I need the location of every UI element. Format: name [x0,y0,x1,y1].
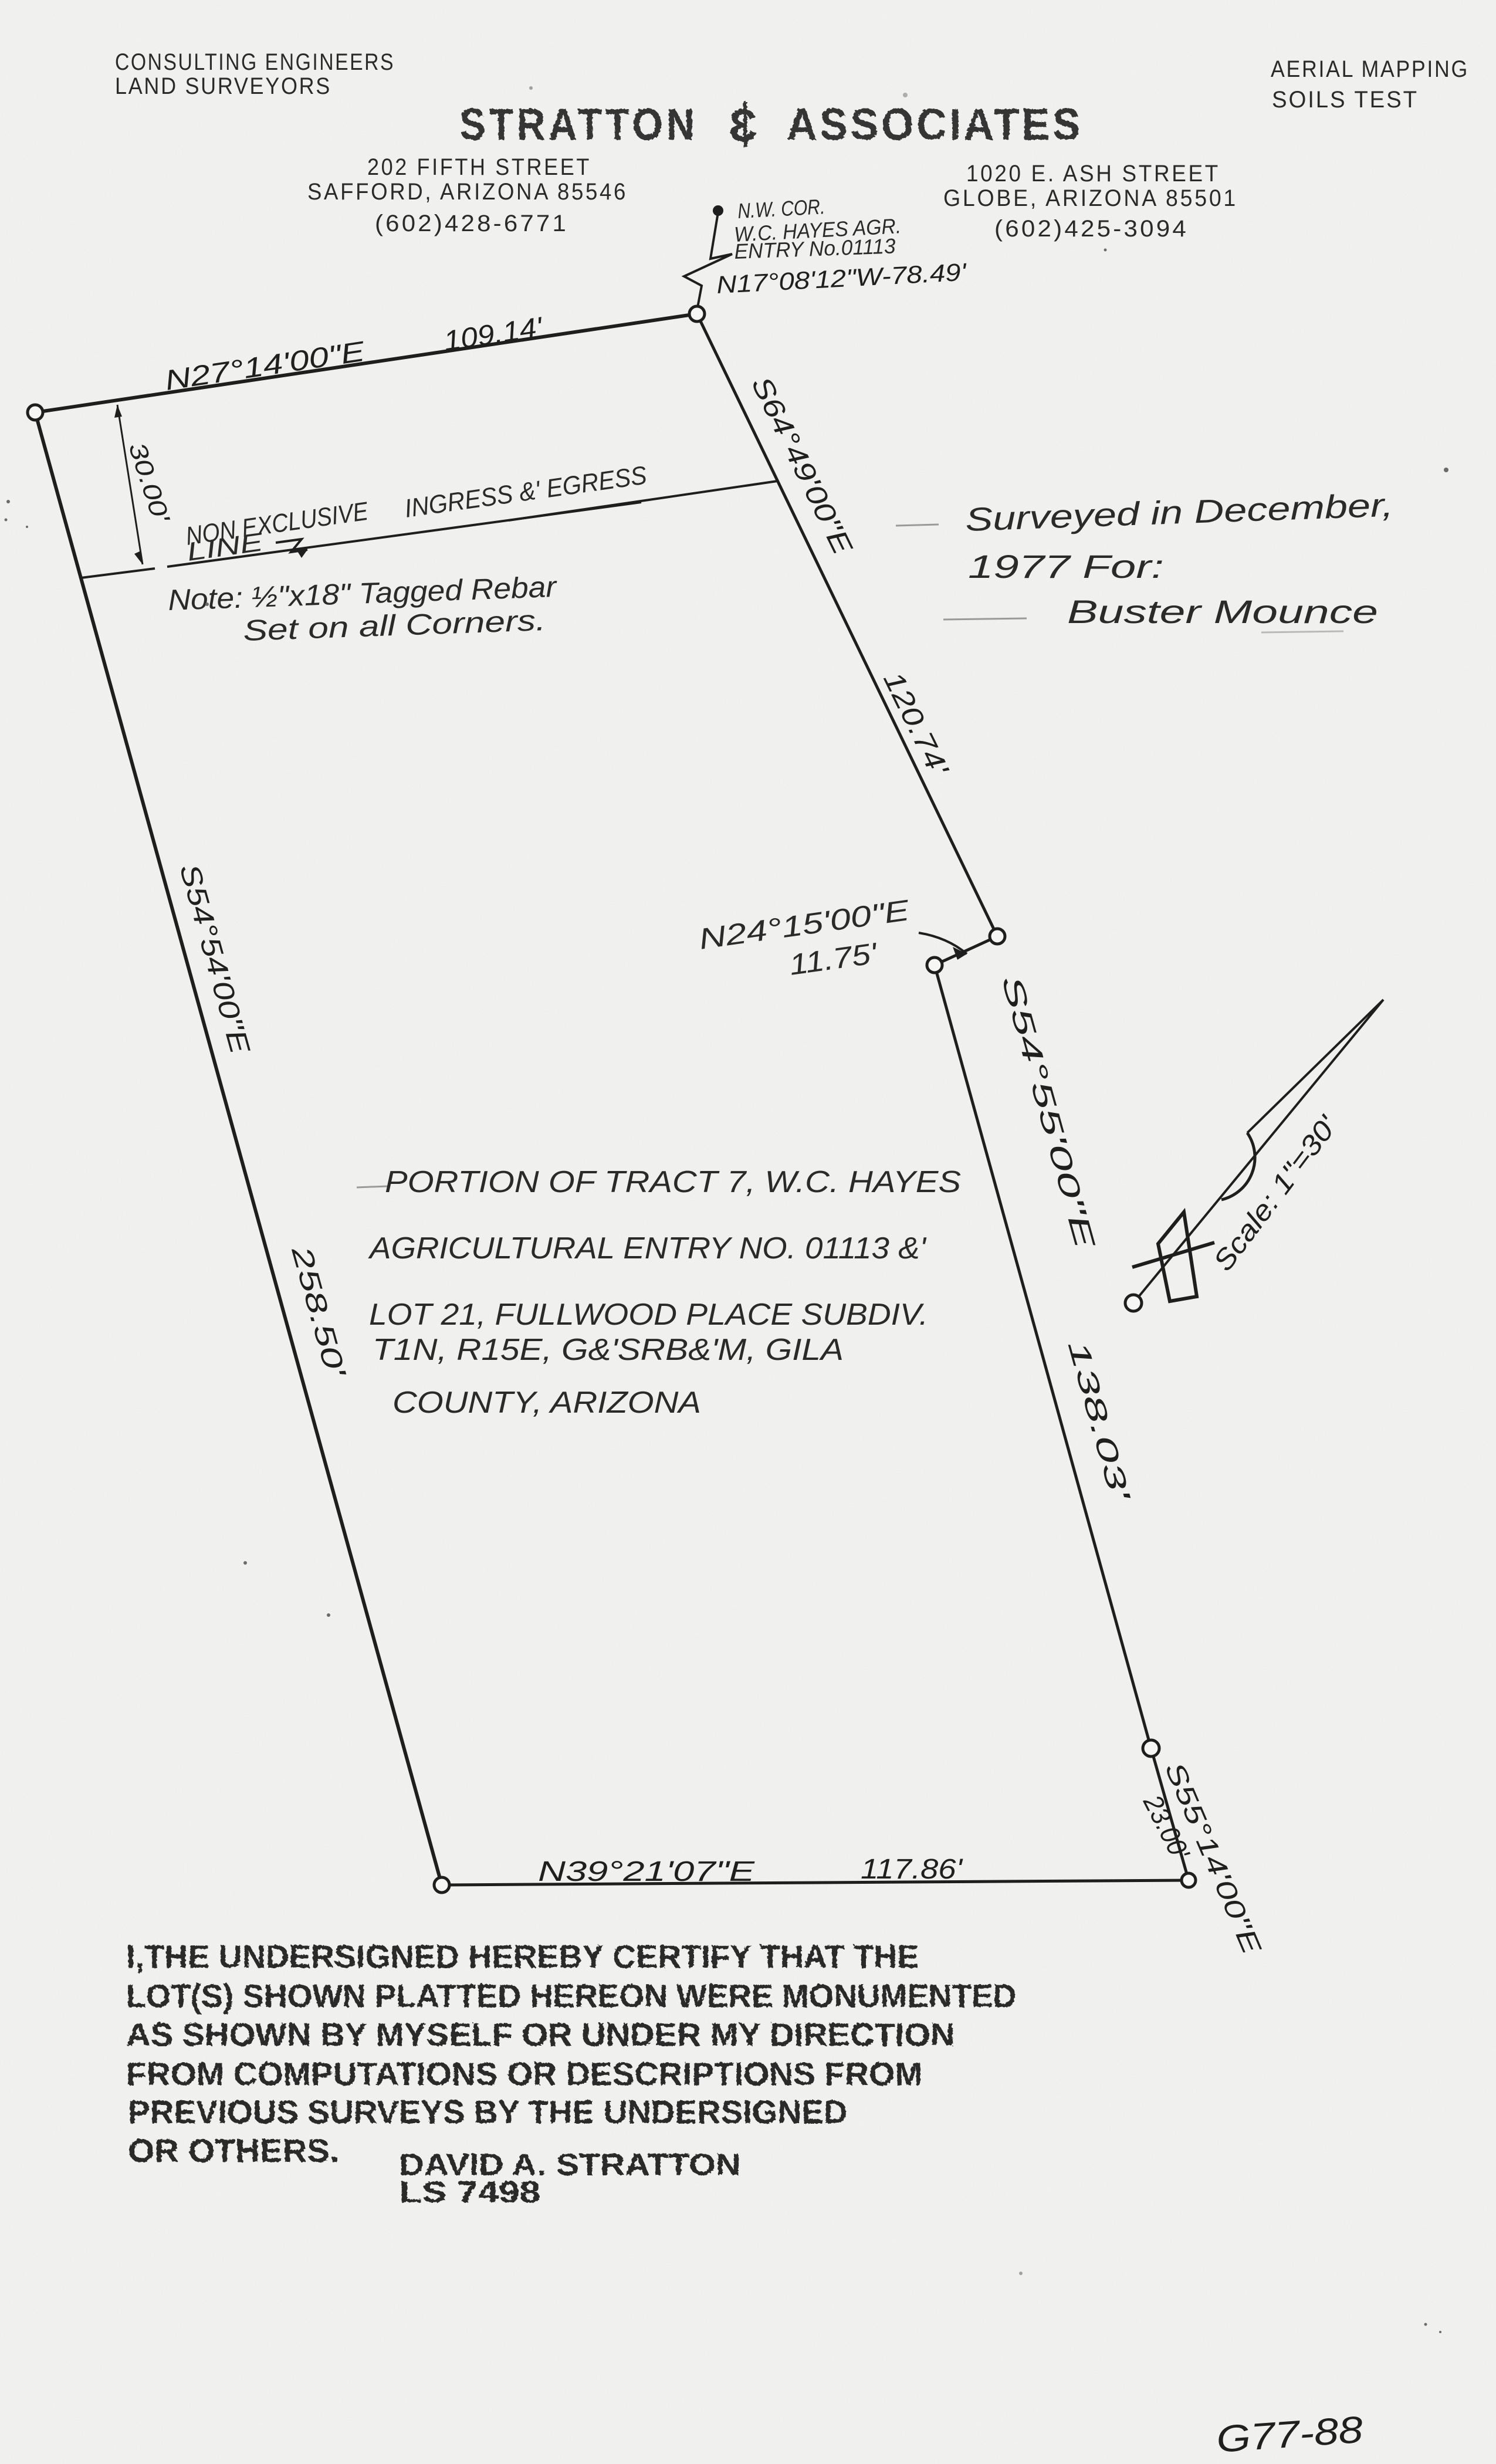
svg-text:LS 7498: LS 7498 [398,2175,540,2209]
svg-text:AGRICULTURAL ENTRY NO. 01113 &: AGRICULTURAL ENTRY NO. 01113 &' [368,1231,927,1265]
svg-text:1977 For:: 1977 For: [968,548,1164,585]
svg-text:LAND SURVEYORS: LAND SURVEYORS [115,73,331,99]
svg-text:PREVIOUS SURVEYS BY THE UNDERS: PREVIOUS SURVEYS BY THE UNDERSIGNED [127,2093,847,2130]
svg-text:PORTION OF TRACT 7, W.C. HAYES: PORTION OF TRACT 7, W.C. HAYES [385,1165,961,1199]
svg-text:COUNTY, ARIZONA: COUNTY, ARIZONA [392,1386,701,1420]
svg-text:(602)428-6771: (602)428-6771 [375,211,568,236]
svg-text:STRATTON: STRATTON [459,99,698,149]
svg-text:OR OTHERS.: OR OTHERS. [127,2131,339,2168]
svg-text:LOT(S) SHOWN PLATTED HEREON WE: LOT(S) SHOWN PLATTED HEREON WERE MONUMEN… [126,1976,1016,2013]
svg-text:N39°21'07"E: N39°21'07"E [538,1856,755,1887]
svg-text:T1N, R15E, G&'SRB&'M, GILA: T1N, R15E, G&'SRB&'M, GILA [373,1333,844,1367]
svg-text:AERIAL MAPPING: AERIAL MAPPING [1271,56,1469,82]
svg-text:SOILS TEST: SOILS TEST [1272,87,1419,113]
svg-text:1020 E. ASH STREET: 1020 E. ASH STREET [966,161,1220,187]
svg-text:Ɛ: Ɛ [728,99,757,150]
svg-text:117.86': 117.86' [861,1854,963,1885]
svg-text:FROM COMPUTATIONS OR DESCRIPTI: FROM COMPUTATIONS OR DESCRIPTIONS FROM [126,2055,922,2091]
svg-text:Buster Mounce: Buster Mounce [1067,593,1378,630]
svg-text:GLOBE, ARIZONA 85501: GLOBE, ARIZONA 85501 [943,185,1238,211]
svg-text:ASSOCIATES: ASSOCIATES [786,99,1082,149]
svg-text:AS SHOWN BY MYSELF OR UNDER M: AS SHOWN BY MYSELF OR UNDER MY DIRECTION [126,2015,954,2052]
svg-text:CONSULTING ENGINEERS: CONSULTING ENGINEERS [115,49,395,75]
svg-text:(602)425-3094: (602)425-3094 [994,216,1189,242]
svg-text:202 FIFTH STREET: 202 FIFTH STREET [367,154,591,180]
svg-text:I,THE UNDERSIGNED HEREBY CERTI: I,THE UNDERSIGNED HEREBY CERTIFY THAT TH… [126,1937,918,1974]
svg-text:LOT 21, FULLWOOD PLACE SUBDIV.: LOT 21, FULLWOOD PLACE SUBDIV. [369,1298,928,1332]
svg-text:SAFFORD, ARIZONA 85546: SAFFORD, ARIZONA 85546 [307,179,628,205]
